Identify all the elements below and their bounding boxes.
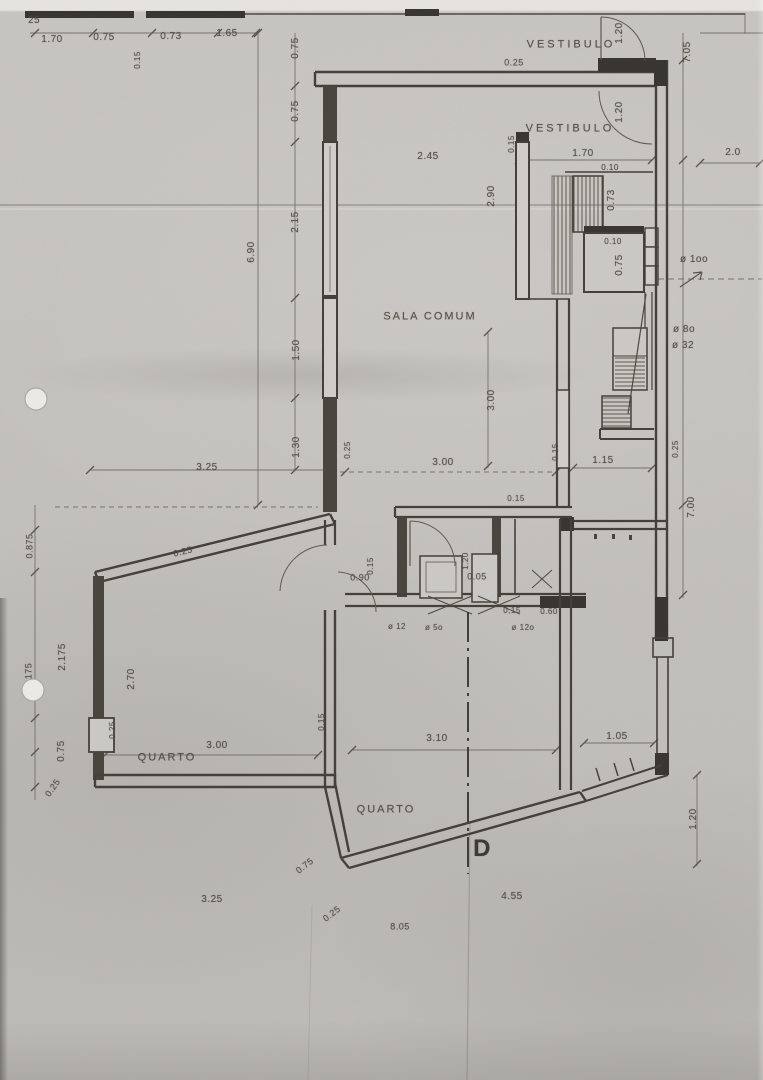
- floor-plan-scan-page: 251.700.750.731.650.150.750.75VESTIBULO1…: [0, 0, 763, 1080]
- page-right-edge-highlight: [757, 0, 763, 1080]
- floorplan-drawing: [0, 0, 763, 1080]
- page-left-edge-shadow: [0, 598, 8, 1080]
- scan-noise-overlay: [0, 0, 763, 1080]
